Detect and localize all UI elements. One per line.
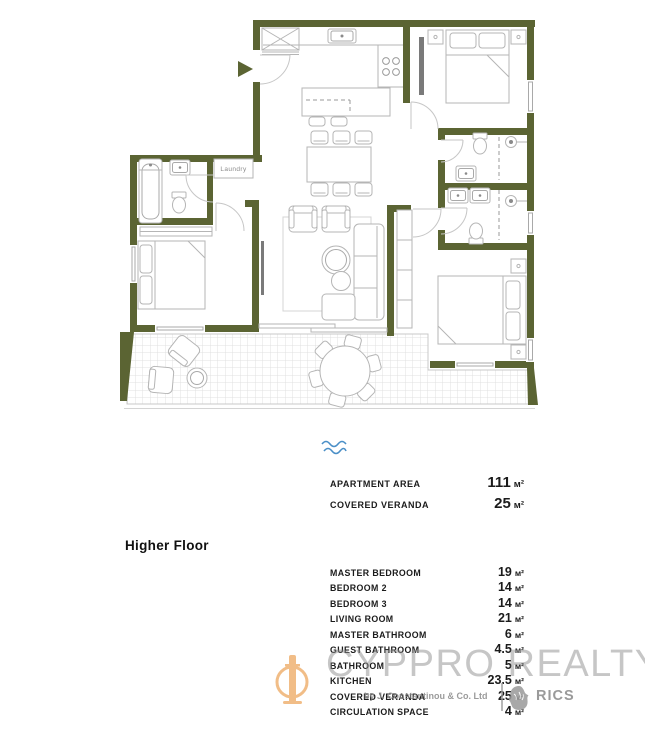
bathroom: Laundry [139,159,253,223]
room-label: BATHROOM [330,661,384,671]
kitchen-island [302,88,390,126]
sliding-door [311,328,387,332]
summary-row: APARTMENT AREA 111м² [330,474,524,495]
laundry-label: Laundry [220,166,247,173]
summary-label: COVERED VERANDA [330,500,429,510]
wardrobe [397,210,412,328]
laundry-closet: Laundry [214,159,253,178]
room-value: 14 [498,596,512,610]
room-label: CIRCULATION SPACE [330,707,429,717]
kitchen-sink [328,29,356,43]
entrance-arrow-icon [238,61,253,77]
room-area-row: LIVING ROOM 21м² [330,609,524,624]
summary-unit: м² [514,479,524,490]
room-label: COVERED VERANDA [330,692,425,702]
bathtub [139,159,162,223]
summary-value: 25 [494,495,511,512]
master-bathroom [441,188,527,244]
armchair [322,206,350,232]
tv [261,241,264,295]
room-unit: м² [515,692,524,702]
room-value: 6 [505,627,512,641]
room-value: 21 [498,611,512,625]
coffee-table [322,246,351,291]
room-value: 4.5 [494,642,511,656]
entrance [238,28,299,84]
room-label: LIVING ROOM [330,614,394,624]
room-area-row: MASTER BATHROOM 6м² [330,625,524,640]
bedroom-2 [411,30,526,129]
room-area-row: BEDROOM 2 14м² [330,578,524,593]
room-unit: м² [515,583,524,593]
rics-label: RICS [536,688,575,704]
stove [383,58,400,76]
bedroom-2-bed [446,30,509,103]
room-value: 23.5 [488,673,512,687]
dining-table [307,131,372,196]
summary-value: 111 [487,474,510,491]
room-unit: м² [515,676,524,686]
room-label: BEDROOM 2 [330,583,387,593]
floorplan-page: Laundry [0,0,645,732]
floor-plan: Laundry [0,0,645,460]
bedroom-3-bed [138,241,205,309]
kitchen-counter [378,45,403,87]
summary-label: APARTMENT AREA [330,479,421,489]
sliding-door [259,324,335,328]
guest-bathroom [441,133,527,181]
room-unit: м² [515,614,524,624]
sea-waves-icon [322,442,346,454]
room-area-row: CIRCULATION SPACE 4м² [330,702,524,717]
room-value: 4 [505,704,512,718]
room-label: BEDROOM 3 [330,599,387,609]
room-unit: м² [515,645,524,655]
room-area-row: BEDROOM 3 14м² [330,594,524,609]
room-areas-table: MASTER BEDROOM 19м² BEDROOM 2 14м² BEDRO… [330,563,524,717]
room-unit: м² [515,661,524,671]
room-value: 14 [498,580,512,594]
room-unit: м² [515,630,524,640]
room-label: MASTER BATHROOM [330,630,427,640]
area-summary: APARTMENT AREA 111м² COVERED VERANDA 25м… [330,474,524,516]
living-room [259,206,387,332]
master-bed [438,276,526,344]
room-value: 25 [498,689,512,703]
room-area-row: KITCHEN 23.5м² [330,671,524,686]
room-value: 5 [505,658,512,672]
room-unit: м² [515,707,524,717]
cyppro-logo-icon [270,650,314,708]
room-area-row: MASTER BEDROOM 19м² [330,563,524,578]
room-unit: м² [515,568,524,578]
room-area-row: GUEST BATHROOM 4.5м² [330,640,524,655]
room-label: MASTER BEDROOM [330,568,421,578]
summary-row: COVERED VERANDA 25м² [330,495,524,516]
room-label: GUEST BATHROOM [330,645,420,655]
armchair [289,206,317,232]
room-label: KITCHEN [330,676,372,686]
room-unit: м² [515,599,524,609]
room-value: 19 [498,565,512,579]
summary-unit: м² [514,500,524,511]
floor-title: Higher Floor [125,538,209,553]
